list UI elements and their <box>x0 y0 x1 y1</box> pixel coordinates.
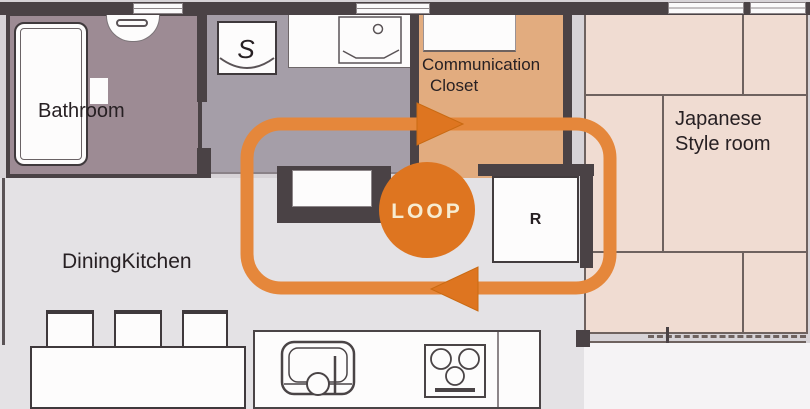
loop-arrow-left-icon <box>431 267 478 311</box>
floor-plan: Bathroom S Communication Closet R Dining… <box>0 0 810 409</box>
loop-arrow-right-icon <box>417 103 463 145</box>
loop-label: LOOP <box>391 200 463 223</box>
circulation-loop-overlay: LOOP <box>0 0 810 409</box>
